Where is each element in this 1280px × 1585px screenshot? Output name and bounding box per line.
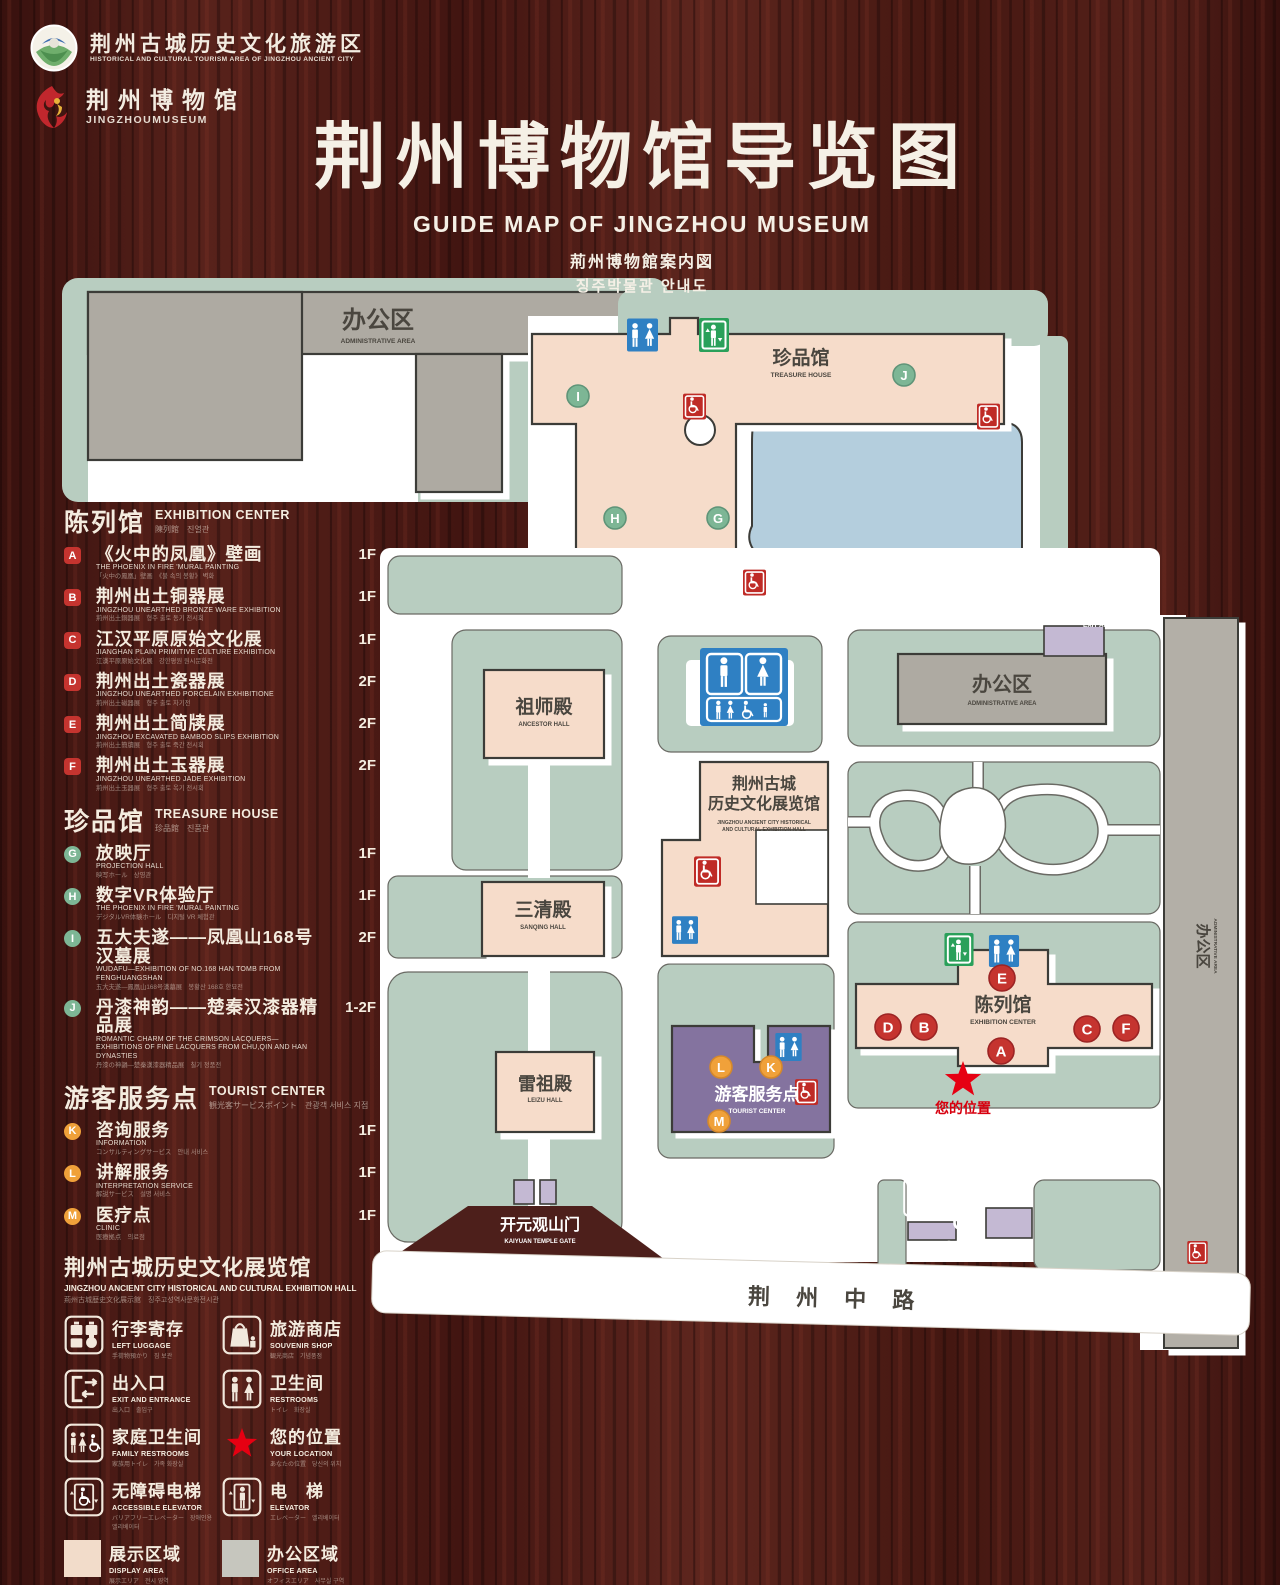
map-label-leizu-hall: 雷祖殿 xyxy=(518,1073,573,1094)
section-title-sub: 陳列館 진열관 xyxy=(155,524,290,535)
garden-pond xyxy=(940,788,1006,864)
tourism-area-logo: 荆州古城历史文化旅游区 HISTORICAL AND CULTURAL TOUR… xyxy=(30,24,365,72)
map-marker-letter-I: I xyxy=(576,389,580,404)
symbol-zh: 电 梯 xyxy=(270,1477,340,1502)
map-marker-letter-K: K xyxy=(766,1060,776,1075)
legend-item-F: F荆州出土玉器展JINGZHOU UNEARTHED JADE EXHIBITI… xyxy=(64,756,376,792)
map-label-kaiyuan-gate: 开元观山门 xyxy=(500,1215,580,1234)
item-name-sub: 江漢平原原始文化展 강한평원 원시문화전 xyxy=(96,658,327,666)
restroom-icon xyxy=(775,1033,801,1061)
item-name-sub: 五大夫遂—鳳凰山168号漢墓展 봉황산 168호 한묘전 xyxy=(96,984,327,992)
map-marker-letter-A: A xyxy=(996,1044,1007,1061)
family-restrooms-icon xyxy=(64,1423,104,1463)
item-name-sub: コンサルティングサービス 안내 서비스 xyxy=(96,1149,327,1157)
item-floor: 1F xyxy=(334,587,376,623)
map-marker-letter-H: H xyxy=(610,511,619,526)
item-letter-badge: F xyxy=(64,758,81,775)
tourist-center-building xyxy=(672,1026,830,1132)
section-title-zh: 游客服务点 xyxy=(64,1079,199,1115)
item-name-en: JINGZHOU UNEARTHED JADE EXHIBITION xyxy=(96,776,327,785)
legend-item-G: G放映厅PROJECTION HALL映写ホール 상영관1F xyxy=(64,844,376,880)
annex-exit-right xyxy=(986,1208,1032,1238)
family-restroom-icon xyxy=(700,648,788,726)
map-marker-letter-B: B xyxy=(919,1020,930,1037)
map-label-exit-bottom-en: EXIT AND ENTRANCE xyxy=(932,1268,1006,1275)
item-name-zh: 讲解服务 xyxy=(96,1163,327,1181)
tourism-area-emblem-icon xyxy=(30,24,78,72)
map-label-treasure-house-en: TREASURE HOUSE xyxy=(771,372,832,379)
map-label-admin-strip-en: ADMINISTRATIVE AREA xyxy=(1212,918,1218,974)
your-location-icon xyxy=(222,1423,262,1463)
symbol-sub: 手荷物預かり 짐 보관 xyxy=(112,1351,184,1360)
item-name-zh: 荆州出土铜器展 xyxy=(96,587,327,605)
map-label-exit-bottom: 出入口 xyxy=(939,1240,999,1263)
elevator-icon xyxy=(944,933,973,966)
gate-post-left xyxy=(514,1180,534,1204)
section-title-en: TOURIST CENTER xyxy=(209,1079,368,1098)
annex-top-right xyxy=(1044,626,1104,656)
item-letter-badge: L xyxy=(64,1165,81,1182)
legend-item-H: H数字VR体验厅THE PHOENIX IN FIRE 'MURAL PAINT… xyxy=(64,886,376,922)
legend-item-A: A《火中的凤凰》壁画THE PHOENIX IN FIRE 'MURAL PAI… xyxy=(64,545,376,581)
elevator-icon xyxy=(222,1477,262,1517)
symbol-en: ACCESSIBLE ELEVATOR xyxy=(112,1503,218,1512)
legend-item-E: E荆州出土简牍展JINGZHOU EXCAVATED BAMBOO SLIPS … xyxy=(64,714,376,750)
item-name-sub: デジタルVR体験ホール 디지털 VR 체험관 xyxy=(96,914,327,922)
legend-item-J: J丹漆神韵——楚秦汉漆器精品展ROMANTIC CHARM OF THE CRI… xyxy=(64,998,376,1070)
map-marker-letter-E: E xyxy=(997,971,1007,988)
item-floor: 1F xyxy=(334,844,376,880)
section-title-en: TREASURE HOUSE xyxy=(155,802,279,821)
item-name-zh: 数字VR体验厅 xyxy=(96,886,327,904)
symbol-en: OFFICE AREA xyxy=(267,1566,344,1575)
symbol-sub: 家族用トイレ 가족 화장실 xyxy=(112,1459,202,1468)
symbol-sub: バリアフリーエレベーター 장애인용 엘리베이터 xyxy=(112,1513,218,1531)
restrooms-icon xyxy=(222,1369,262,1409)
map-label-your-location: 您的位置 xyxy=(935,1100,991,1116)
museum-logo-text: 荆州博物馆 JINGZHOUMUSEUM xyxy=(86,88,246,125)
map-label-treasure-house: 珍品馆 xyxy=(772,346,829,369)
map-label-leizu-hall-en: LEIZU HALL xyxy=(528,1098,563,1104)
symbol-zh: 办公区域 xyxy=(267,1540,344,1565)
map-label-admin-right-en: ADMINISTRATIVE AREA xyxy=(968,701,1038,707)
history-hall-court xyxy=(756,830,828,904)
legend-symbol-family-restrooms: 家庭卫生间FAMILY RESTROOMS家族用トイレ 가족 화장실 xyxy=(64,1423,218,1468)
tourism-area-name-en: HISTORICAL AND CULTURAL TOURISM AREA OF … xyxy=(90,56,365,63)
item-name-sub: 映写ホール 상영관 xyxy=(96,872,327,880)
map-label-history-hall-en: AND CULTURAL EXHIBITION HALL xyxy=(722,827,806,833)
map-label-admin-tl-en: ADMINISTRATIVE AREA xyxy=(341,338,416,345)
legend-item-M: M医疗点CLINIC医療拠点 의료점1F xyxy=(64,1206,376,1242)
symbol-zh: 家庭卫生间 xyxy=(112,1423,202,1448)
item-name-en: CLINIC xyxy=(96,1225,327,1234)
legend-symbol-office-area: 办公区域OFFICE AREAオフィスエリア 사무실 구역 xyxy=(222,1540,376,1585)
accessible-elevator-icon xyxy=(64,1477,104,1517)
map-marker-letter-F: F xyxy=(1121,1021,1130,1038)
item-name-zh: 荆州出土瓷器展 xyxy=(96,672,327,690)
section-title-en: EXHIBITION CENTER xyxy=(155,503,290,522)
item-name-en: THE PHOENIX IN FIRE 'MURAL PAINTING xyxy=(96,564,327,573)
item-floor: 2F xyxy=(334,756,376,792)
museum-name-en: JINGZHOUMUSEUM xyxy=(86,114,246,126)
legend-symbols: 行李寄存LEFT LUGGAGE手荷物預かり 짐 보관旅游商店SOUVENIR … xyxy=(64,1315,376,1585)
section-title-sub: 観光客サービスポイント 관광객 서비스 지점 xyxy=(209,1100,368,1111)
accessible-elevator-icon xyxy=(977,404,1000,430)
item-name-en: PROJECTION HALL xyxy=(96,863,327,872)
legend-symbol-elevator: 电 梯ELEVATORエレベーター 엘리베이터 xyxy=(222,1477,376,1531)
symbol-en: SOUVENIR SHOP xyxy=(270,1341,342,1350)
map-label-sanqing-hall: 三清殿 xyxy=(514,898,572,921)
item-name-zh: 荆州出土简牍展 xyxy=(96,714,327,732)
item-floor: 2F xyxy=(334,928,376,991)
symbol-en: ELEVATOR xyxy=(270,1503,340,1512)
item-name-sub: 荊州出土玉器展 형주 출토 옥기 전시회 xyxy=(96,785,327,793)
exit-entrance-icon xyxy=(64,1369,104,1409)
item-letter-badge: K xyxy=(64,1123,81,1140)
item-name-sub: 医療拠点 의료점 xyxy=(96,1234,327,1242)
map-label-history-hall-en: JINGZHOU ANCIENT CITY HISTORICAL xyxy=(717,820,811,826)
symbol-en: LEFT LUGGAGE xyxy=(112,1341,184,1350)
annex-exit-left xyxy=(908,1222,956,1240)
section-title-sub: 珍品館 진품관 xyxy=(155,823,279,834)
item-name-zh: 放映厅 xyxy=(96,844,327,862)
map-label-exhibition-center-en: EXHIBITION CENTER xyxy=(970,1019,1036,1026)
map-marker-letter-J: J xyxy=(900,368,907,383)
legend-symbol-accessible-elevator: 无障碍电梯ACCESSIBLE ELEVATORバリアフリーエレベーター 장애인… xyxy=(64,1477,218,1531)
item-name-sub: 荊州出土銅器展 형주 출토 동기 전시회 xyxy=(96,615,327,623)
item-name-zh: 江汉平原原始文化展 xyxy=(96,630,327,648)
symbol-zh: 展示区域 xyxy=(109,1540,181,1565)
legend-symbol-your-location: 您的位置YOUR LOCATIONあなたの位置 당신의 위치 xyxy=(222,1423,376,1468)
map-marker-letter-D: D xyxy=(883,1020,894,1037)
restroom-icon xyxy=(989,935,1019,967)
symbol-zh: 卫生间 xyxy=(270,1369,324,1394)
item-name-zh: 五大夫遂——凤凰山168号汉墓展 xyxy=(96,928,327,965)
map-label-exit-top: 出入口 xyxy=(1090,596,1144,617)
map-label-tourist-center-en: TOURIST CENTER xyxy=(729,1108,786,1115)
symbol-en: EXIT AND ENTRANCE xyxy=(112,1395,191,1404)
symbol-en: FAMILY RESTROOMS xyxy=(112,1449,202,1458)
item-name-en: INFORMATION xyxy=(96,1140,327,1149)
item-letter-badge: G xyxy=(64,846,81,863)
souvenir-shop-icon xyxy=(222,1315,262,1355)
legend-sections: 陈列馆EXHIBITION CENTER陳列館 진열관A《火中的凤凰》壁画THE… xyxy=(64,503,376,1242)
symbol-en: RESTROOMS xyxy=(270,1395,324,1404)
map-marker-letter-L: L xyxy=(717,1060,725,1075)
symbol-zh: 无障碍电梯 xyxy=(112,1477,218,1502)
item-name-sub: 丹漆の神韻—楚秦漢漆器精品展 칠기 정품전 xyxy=(96,1062,327,1070)
map-marker-letter-M: M xyxy=(714,1114,725,1129)
item-name-zh: 医疗点 xyxy=(96,1206,327,1224)
legend-item-I: I五大夫遂——凤凰山168号汉墓展WUDAFU—EXHIBITION OF NO… xyxy=(64,928,376,991)
history-hall-note-zh: 荆州古城历史文化展览馆 xyxy=(64,1251,376,1282)
history-hall-note-sub: 荊州古城歴史文化展示館 징주고성역사문화전시관 xyxy=(64,1295,376,1305)
office-area-icon xyxy=(222,1540,259,1577)
elevator-icon xyxy=(699,318,729,352)
map-label-tourist-center: 游客服务点 xyxy=(715,1084,800,1104)
map-label-exit-top-en: EXIT AND ENTRANCE xyxy=(1083,622,1152,629)
item-floor: 1F xyxy=(334,886,376,922)
museum-logo: 荆州博物馆 JINGZHOUMUSEUM xyxy=(30,84,246,130)
legend-section-treasure: 珍品馆TREASURE HOUSE珍品館 진품관G放映厅PROJECTION H… xyxy=(64,802,376,1070)
symbol-zh: 出入口 xyxy=(112,1369,191,1394)
map-label-history-hall: 荆州古城 xyxy=(732,774,796,793)
symbol-sub: トイレ 화장실 xyxy=(270,1405,324,1414)
accessible-elevator-icon xyxy=(1187,1241,1207,1264)
history-hall-note-en: JINGZHOU ANCIENT CITY HISTORICAL AND CUL… xyxy=(64,1284,376,1293)
item-floor: 1-2F xyxy=(334,998,376,1070)
page-title-ja: 荊州博物館案内図 xyxy=(314,248,970,272)
symbol-sub: オフィスエリア 사무실 구역 xyxy=(267,1576,344,1585)
item-letter-badge: E xyxy=(64,716,81,733)
item-name-zh: 咨询服务 xyxy=(96,1121,327,1139)
restroom-icon xyxy=(627,319,658,352)
symbol-zh: 行李寄存 xyxy=(112,1315,184,1340)
item-name-en: JINGZHOU UNEARTHED PORCELAIN EXHIBITIONE xyxy=(96,691,327,700)
treasure-courtyard-notch xyxy=(685,415,715,445)
item-floor: 1F xyxy=(334,1206,376,1242)
legend-symbol-restrooms: 卫生间RESTROOMSトイレ 화장실 xyxy=(222,1369,376,1414)
lawn-strip xyxy=(388,556,622,614)
map-title-block: 荆州博物馆导览图 GUIDE MAP OF JINGZHOU MUSEUM 荊州… xyxy=(314,98,970,296)
legend-item-K: K咨询服务INFORMATIONコンサルティングサービス 안내 서비스1F xyxy=(64,1121,376,1157)
map-label-admin-right: 办公区 xyxy=(972,672,1032,696)
item-name-en: WUDAFU—EXHIBITION OF NO.168 HAN TOMB FRO… xyxy=(96,966,327,984)
item-name-zh: 《火中的凤凰》壁画 xyxy=(96,545,327,563)
legend-item-C: C江汉平原原始文化展JIANGHAN PLAIN PRIMITIVE CULTU… xyxy=(64,630,376,666)
history-hall-note: 荆州古城历史文化展览馆 JINGZHOU ANCIENT CITY HISTOR… xyxy=(64,1251,376,1305)
item-name-zh: 丹漆神韵——楚秦汉漆器精品展 xyxy=(96,998,327,1035)
symbol-sub: あなたの位置 당신의 위치 xyxy=(270,1459,342,1468)
item-name-sub: 荊州出土磁器展 형주 출토 자기전 xyxy=(96,700,327,708)
legend-item-D: D荆州出土瓷器展JINGZHOU UNEARTHED PORCELAIN EXH… xyxy=(64,672,376,708)
axis-paths xyxy=(528,756,550,1244)
map-marker-letter-C: C xyxy=(1082,1022,1093,1039)
lawn-exit-left xyxy=(878,1180,906,1270)
tourism-area-name-zh: 荆州古城历史文化旅游区 xyxy=(90,33,365,56)
gate-post-right xyxy=(540,1180,556,1204)
item-letter-badge: D xyxy=(64,674,81,691)
item-letter-badge: B xyxy=(64,589,81,606)
map-label-admin-tl: 办公区 xyxy=(342,307,414,334)
page-title: 荆州博物馆导览图 xyxy=(314,98,970,203)
item-letter-badge: H xyxy=(64,888,81,905)
symbol-sub: 展示エリア 전시 영역 xyxy=(109,1576,181,1585)
item-floor: 2F xyxy=(334,714,376,750)
item-name-sub: 「火中の鳳凰」壁画 《불 속의 봉황》 벽화 xyxy=(96,573,327,581)
item-name-sub: 荊州出土簡牘展 형주 출토 죽간 전시회 xyxy=(96,742,327,750)
map-label-ancestor-hall: 祖师殿 xyxy=(514,695,573,718)
symbol-en: DISPLAY AREA xyxy=(109,1566,181,1575)
admin-strip-building xyxy=(1164,618,1238,1348)
item-floor: 1F xyxy=(334,630,376,666)
legend-item-B: B荆州出土铜器展JINGZHOU UNEARTHED BRONZE WARE E… xyxy=(64,587,376,623)
map-label-jingzhou-middle-road: 荆 州 中 路 xyxy=(748,1284,925,1314)
museum-phoenix-icon xyxy=(30,84,74,130)
item-letter-badge: M xyxy=(64,1208,81,1225)
legend-item-L: L讲解服务INTERPRETATION SERVICE解説サービス 설명 서비스… xyxy=(64,1163,376,1199)
legend-section-tourist: 游客服务点TOURIST CENTER観光客サービスポイント 관광객 서비스 지… xyxy=(64,1079,376,1242)
map-label-sanqing-hall-en: SANQING HALL xyxy=(520,925,566,931)
item-name-sub: 解説サービス 설명 서비스 xyxy=(96,1191,327,1199)
legend-symbol-left-luggage: 行李寄存LEFT LUGGAGE手荷物預かり 짐 보관 xyxy=(64,1315,218,1360)
map-label-admin-strip: 办公区 xyxy=(1194,923,1212,968)
map-marker-letter-G: G xyxy=(713,511,723,526)
item-name-en: THE PHOENIX IN FIRE 'MURAL PAINTING xyxy=(96,905,327,914)
item-floor: 1F xyxy=(334,1121,376,1157)
item-letter-badge: I xyxy=(64,930,81,947)
symbol-sub: 観光商店 기념품점 xyxy=(270,1351,342,1360)
legend-symbol-display-area: 展示区域DISPLAY AREA展示エリア 전시 영역 xyxy=(64,1540,218,1585)
accessible-elevator-icon xyxy=(683,394,706,420)
section-title-zh: 珍品馆 xyxy=(64,802,145,838)
item-floor: 2F xyxy=(334,672,376,708)
accessible-elevator-icon xyxy=(743,570,766,596)
page-title-en: GUIDE MAP OF JINGZHOU MUSEUM xyxy=(314,211,970,238)
symbol-sub: エレベーター 엘리베이터 xyxy=(270,1513,340,1522)
display-area-icon xyxy=(64,1540,101,1577)
item-floor: 1F xyxy=(334,1163,376,1199)
item-name-en: ROMANTIC CHARM OF THE CRIMSON LACQUERS— … xyxy=(96,1036,327,1062)
legend-symbol-souvenir-shop: 旅游商店SOUVENIR SHOP観光商店 기념품점 xyxy=(222,1315,376,1360)
left-luggage-icon xyxy=(64,1315,104,1355)
legend-section-exhibition: 陈列馆EXHIBITION CENTER陳列館 진열관A《火中的凤凰》壁画THE… xyxy=(64,503,376,793)
item-name-zh: 荆州出土玉器展 xyxy=(96,756,327,774)
symbol-zh: 旅游商店 xyxy=(270,1315,342,1340)
symbol-sub: 出入口 출입구 xyxy=(112,1405,191,1414)
legend-panel: 陈列馆EXHIBITION CENTER陳列館 진열관A《火中的凤凰》壁画THE… xyxy=(64,503,376,1585)
item-letter-badge: A xyxy=(64,547,81,564)
map-label-exhibition-center: 陈列馆 xyxy=(974,993,1031,1016)
restroom-icon xyxy=(672,916,698,944)
section-title-zh: 陈列馆 xyxy=(64,503,145,539)
item-letter-badge: C xyxy=(64,632,81,649)
map-label-history-hall: 历史文化展览馆 xyxy=(708,794,820,813)
item-floor: 1F xyxy=(334,545,376,581)
museum-name-zh: 荆州博物馆 xyxy=(86,88,246,113)
accessible-elevator-icon xyxy=(694,856,721,886)
item-letter-badge: J xyxy=(64,1000,81,1017)
legend-symbol-exit-entrance: 出入口EXIT AND ENTRANCE出入口 출입구 xyxy=(64,1369,218,1414)
item-name-en: JINGZHOU EXCAVATED BAMBOO SLIPS EXHIBITI… xyxy=(96,734,327,743)
symbol-zh: 您的位置 xyxy=(270,1423,342,1448)
item-name-en: JIANGHAN PLAIN PRIMITIVE CULTURE EXHIBIT… xyxy=(96,649,327,658)
tourism-area-logo-text: 荆州古城历史文化旅游区 HISTORICAL AND CULTURAL TOUR… xyxy=(90,33,365,63)
page-title-ko: 징주박물관 안내도 xyxy=(314,275,970,296)
map-label-ancestor-hall-en: ANCESTOR HALL xyxy=(518,722,570,728)
symbol-en: YOUR LOCATION xyxy=(270,1449,342,1458)
map-label-kaiyuan-gate-en: KAIYUAN TEMPLE GATE xyxy=(504,1239,575,1245)
lawn-exit-right xyxy=(1034,1180,1160,1270)
